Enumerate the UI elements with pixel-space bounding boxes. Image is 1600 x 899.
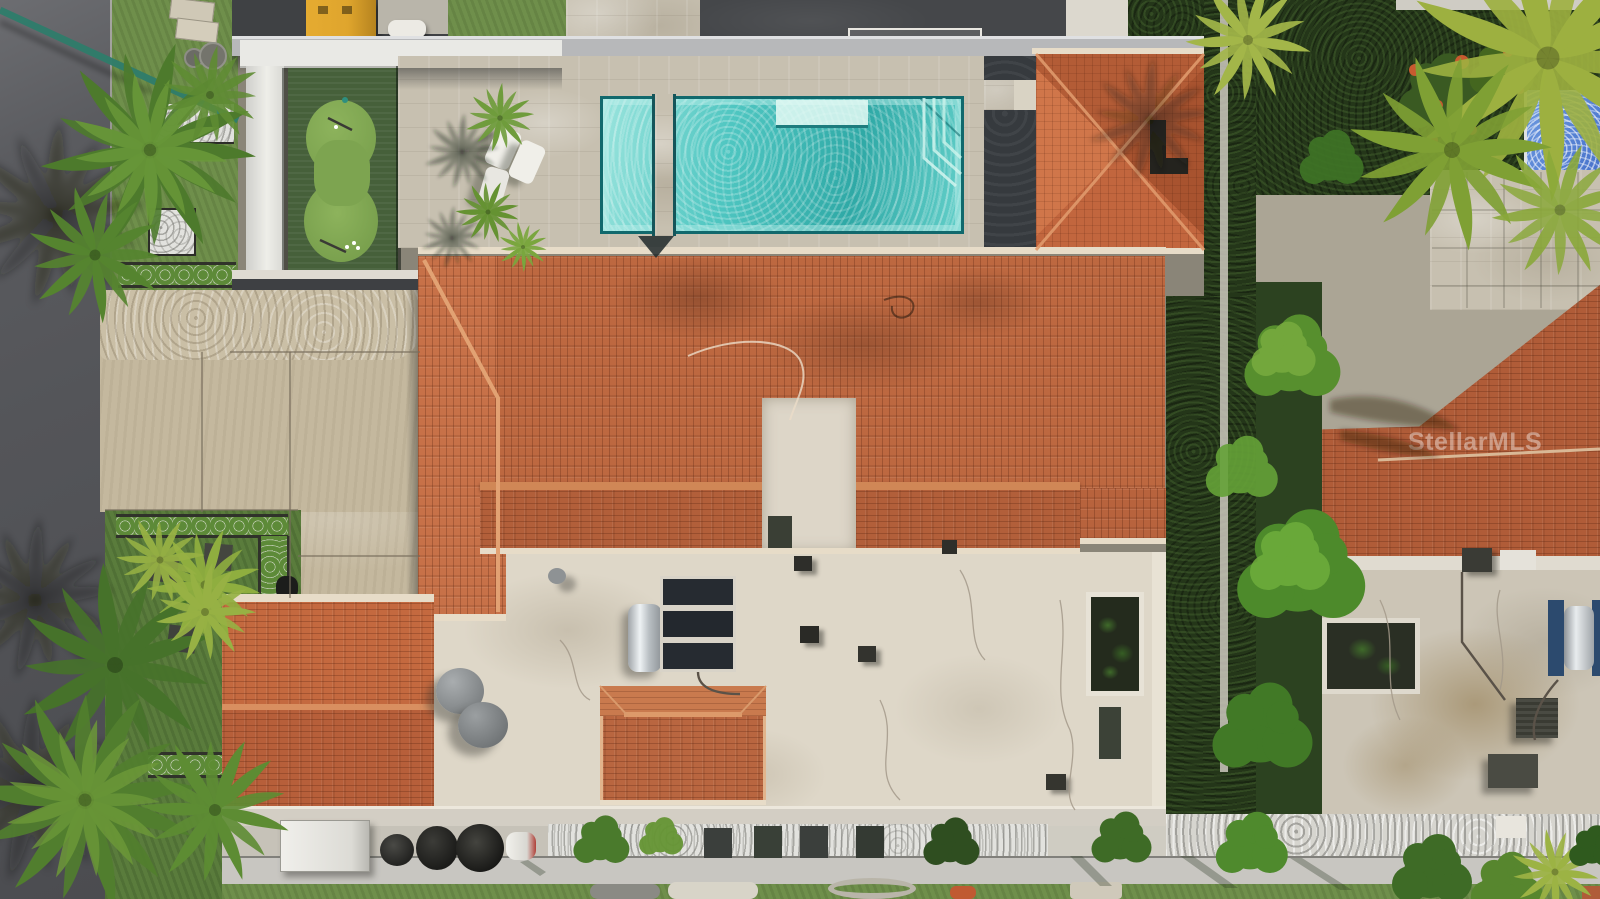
garden-paver [149,555,179,583]
neighbor-white-unit [1496,816,1526,838]
pool-tanning-shelf [776,100,868,128]
property-wall-line [1220,0,1228,772]
roof-vent-pipe [548,568,566,584]
roof-parapet-east [1152,552,1166,814]
lawn-object [668,882,758,899]
neighbor-dark-garden [1256,282,1322,814]
neighbor-vent-box [1462,548,1492,572]
lawn-object [590,884,660,899]
roof-courtyard [1086,592,1144,696]
roof-vent-box [794,556,812,571]
neighbor-stone-patio [566,0,700,40]
center-hip-ridge [624,712,742,717]
yard-west-wall [246,66,284,280]
garden-border-band [116,514,288,538]
utility-cover [199,42,227,70]
stairwell-opening [1096,704,1124,762]
hedge-row-south [1166,296,1258,814]
garden-border-band [118,262,236,288]
neighbor-solar-panel [1548,600,1564,676]
gable-roof-lower [222,710,434,810]
stepping-stone [856,826,884,858]
roof-vent-box [942,540,957,554]
center-hip-eave [600,800,766,805]
neighbor-white-deck [1066,0,1128,40]
aerial-photo-scene: StellarMLS [0,0,1600,899]
lawn-object [1070,882,1122,899]
kettle-grill [456,824,504,872]
roof-notch-door [768,516,792,550]
white-gravel-bed [148,208,196,256]
stepping-stone [800,826,828,858]
gable-roof-top-eave [222,594,434,602]
yellow-equipment-box [306,0,376,36]
driveway-lower [298,512,420,600]
propane-tank [506,832,536,860]
stepping-stone [704,828,732,858]
west-roof-strip [418,256,506,618]
rear-strip-east [1048,826,1166,856]
stepping-stone [754,826,782,858]
main-roof-bottom-eave [480,548,1080,554]
stellarmls-watermark: StellarMLS [1408,428,1598,457]
gable-roof-upper [222,602,434,706]
white-gravel-bed [150,104,234,144]
slate-stone-bright [1014,80,1036,110]
garden-paver [167,624,198,653]
garden-paver [203,543,233,571]
main-roof-east-section [1080,488,1166,540]
neighbor-white-box [1500,550,1536,570]
neighbor-wall-top [1396,0,1600,10]
neighbor-deck-pavers [1430,170,1600,310]
solar-panel-array [660,576,736,672]
pool-spa-bridge [652,94,676,236]
lawn-object [950,886,976,899]
roof-vent-box [858,646,876,662]
neighbor-rubble-strip [1166,810,1600,858]
neighbor-ac-unit [1488,754,1538,788]
yellow-box-vent [342,6,352,14]
driveway-stamped-band [100,290,420,360]
east-roof-eave [1080,538,1166,544]
rear-gravel-bed [548,824,1048,860]
corner-roof-sliver [1582,886,1600,899]
roof-vent-box [800,626,819,643]
ac-unit-box [280,820,370,872]
neighbor-roof-parapet [1322,556,1600,570]
putting-green-waist [314,140,370,206]
kettle-grill [380,834,414,866]
neighbor-water-heater [1564,606,1594,670]
neighbor-ac-unit [1516,698,1558,738]
kettle-grill [416,826,458,870]
pyramid-roof [1036,54,1204,250]
deck-wall-shadow [398,68,562,90]
yellow-box-vent [318,6,328,14]
neighbor-courtyard [1322,618,1420,694]
roof-vent-box [1046,774,1066,790]
satellite-dish [458,702,508,748]
lawn-object-ring [828,878,916,899]
solar-water-heater-tank [628,604,662,672]
pyramid-eave [1032,48,1204,54]
hedge-row-north [1204,0,1258,310]
main-roof-top-eave [418,247,1166,254]
